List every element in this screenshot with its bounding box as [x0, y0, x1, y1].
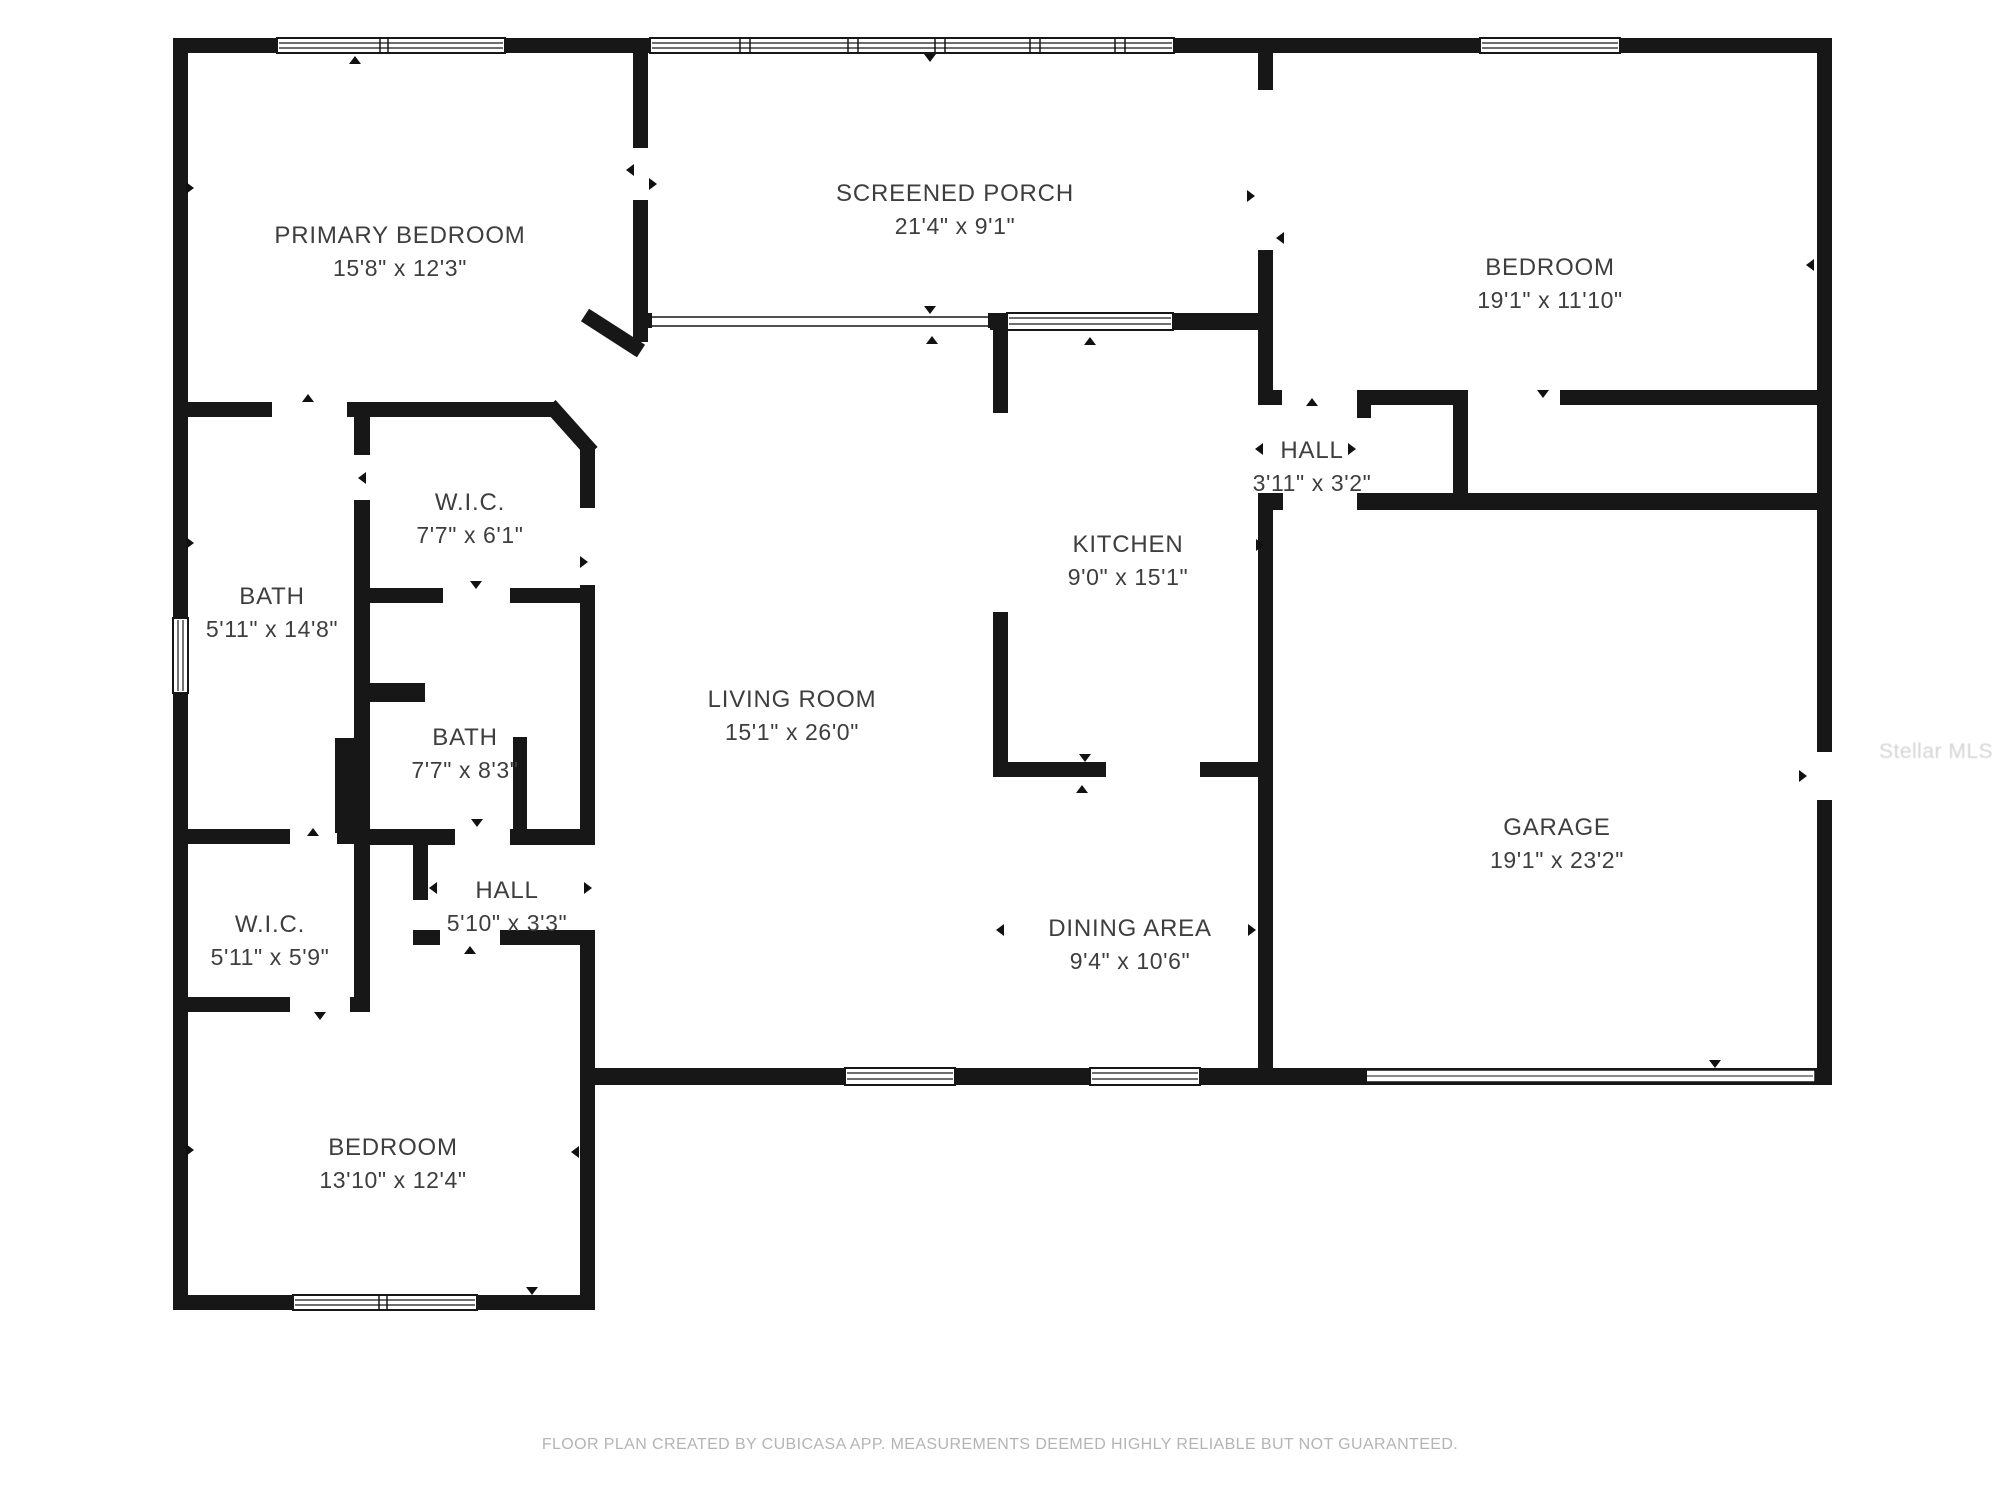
room-dims: 15'8" x 12'3" — [274, 257, 525, 280]
room-name: W.I.C. — [416, 491, 523, 515]
room-label-living-room: LIVING ROOM 15'1" x 26'0" — [708, 688, 877, 744]
room-dims: 15'1" x 26'0" — [708, 721, 877, 744]
room-label-bedroom-bottom-left: BEDROOM 13'10" x 12'4" — [319, 1136, 466, 1192]
room-name: GARAGE — [1490, 816, 1624, 840]
room-label-dining-area: DINING AREA 9'4" x 10'6" — [1048, 917, 1212, 973]
room-dims: 19'1" x 23'2" — [1490, 849, 1624, 872]
room-name: LIVING ROOM — [708, 688, 877, 712]
room-name: HALL — [447, 879, 568, 903]
room-label-hall-right: HALL 3'11" x 3'2" — [1253, 439, 1372, 495]
room-name: BEDROOM — [319, 1136, 466, 1160]
footer-disclaimer: FLOOR PLAN CREATED BY CUBICASA APP. MEAS… — [542, 1436, 1458, 1454]
room-label-bath-hall: BATH 7'7" x 8'3" — [411, 726, 518, 782]
room-name: KITCHEN — [1068, 533, 1189, 557]
room-name: BATH — [206, 585, 338, 609]
room-name: BEDROOM — [1477, 256, 1623, 280]
room-label-garage: GARAGE 19'1" x 23'2" — [1490, 816, 1624, 872]
room-name: SCREENED PORCH — [836, 182, 1074, 206]
room-dims: 7'7" x 6'1" — [416, 524, 523, 547]
room-dims: 19'1" x 11'10" — [1477, 289, 1623, 312]
room-name: W.I.C. — [211, 913, 330, 937]
room-label-screened-porch: SCREENED PORCH 21'4" x 9'1" — [836, 182, 1074, 238]
room-dims: 13'10" x 12'4" — [319, 1169, 466, 1192]
room-dims: 3'11" x 3'2" — [1253, 472, 1372, 495]
room-label-primary-bedroom: PRIMARY BEDROOM 15'8" x 12'3" — [274, 224, 525, 280]
floor-plan: PRIMARY BEDROOM 15'8" x 12'3" SCREENED P… — [0, 0, 2000, 1500]
room-dims: 5'11" x 14'8" — [206, 618, 338, 641]
room-name: HALL — [1253, 439, 1372, 463]
room-dims: 21'4" x 9'1" — [836, 215, 1074, 238]
room-name: BATH — [411, 726, 518, 750]
room-dims: 5'10" x 3'3" — [447, 912, 568, 935]
room-dims: 9'4" x 10'6" — [1048, 950, 1212, 973]
room-name: DINING AREA — [1048, 917, 1212, 941]
room-label-wic-primary: W.I.C. 7'7" x 6'1" — [416, 491, 523, 547]
room-dims: 9'0" x 15'1" — [1068, 566, 1189, 589]
room-label-bath-primary: BATH 5'11" x 14'8" — [206, 585, 338, 641]
room-name: PRIMARY BEDROOM — [274, 224, 525, 248]
room-dims: 7'7" x 8'3" — [411, 759, 518, 782]
room-label-bedroom-top-right: BEDROOM 19'1" x 11'10" — [1477, 256, 1623, 312]
room-dims: 5'11" x 5'9" — [211, 946, 330, 969]
mls-watermark: Stellar MLS — [1879, 740, 1993, 764]
room-label-wic-second: W.I.C. 5'11" x 5'9" — [211, 913, 330, 969]
room-label-kitchen: KITCHEN 9'0" x 15'1" — [1068, 533, 1189, 589]
room-label-hall-left: HALL 5'10" x 3'3" — [447, 879, 568, 935]
